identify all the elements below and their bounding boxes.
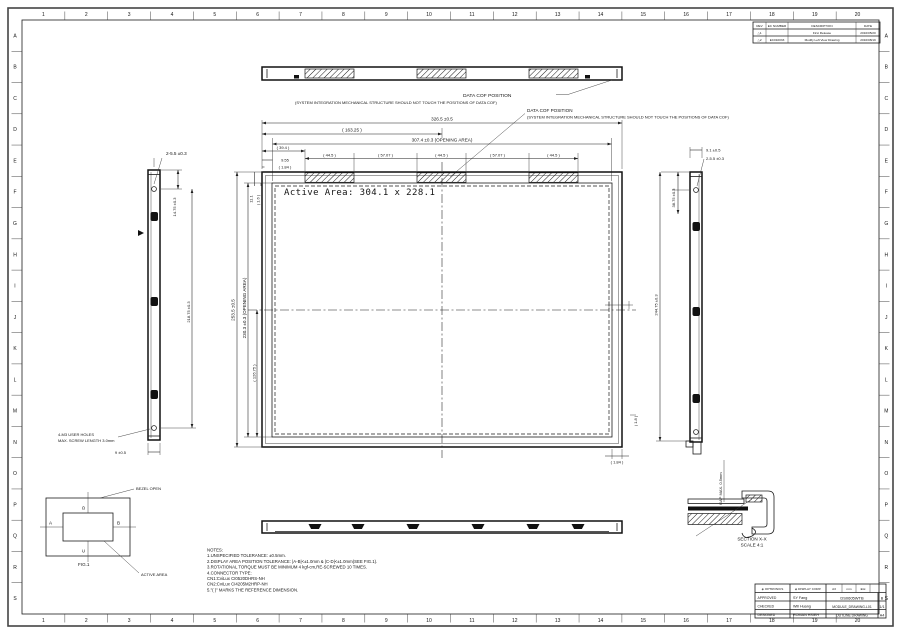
grid-label: 18	[769, 12, 775, 18]
dim-seg-a: ( 44.5 )	[323, 153, 336, 158]
grid-label: Q	[13, 534, 17, 540]
grid-label: G	[13, 221, 17, 227]
grid-label: 17	[726, 618, 732, 624]
grid-label: 19	[812, 618, 818, 624]
data-cof-callout-top-line2: (SYSTEM INTEGRATION MECHANICAL STRUCTURE…	[295, 100, 497, 105]
notes-line-3: 3.ROTATIONAL TORQUE MUST BE MINIMUM 4 kg…	[207, 565, 367, 570]
rev-header-desc: DESCRIPTION	[811, 24, 832, 28]
grid-label: K	[13, 346, 17, 352]
grid-label: H	[13, 252, 17, 258]
dim-opening-width: 307.4 ±0.3 (OPENING AREA)	[412, 138, 473, 143]
grid-label: 6	[256, 618, 259, 624]
notes: NOTES: 1.UNSPECIFIED TOLERANCE: ±0.5mm. …	[207, 548, 377, 593]
checked-label: CHECKED	[758, 605, 775, 609]
active-area-label: Active Area: 304.1 x 228.1	[284, 188, 435, 198]
dim-seg-e: ( 44.5 )	[547, 153, 560, 158]
front-view: Active Area: 304.1 x 228.1 11.1 ( 1.6 ) …	[248, 162, 638, 465]
section-title: SECTION X-X	[737, 537, 766, 542]
designed-name: ROMAN HSIEH	[793, 613, 819, 617]
engineering-drawing-sheet: 1122334455667788991010111112121313141415…	[0, 0, 901, 634]
grid-label: P	[885, 502, 889, 508]
grid-label: R	[884, 565, 888, 571]
grid-label: 5	[213, 12, 216, 18]
grid-label: F	[13, 190, 16, 196]
notes-line-4: 4.CONNECTOR TYPE:	[207, 570, 252, 575]
rev-header-ec: EC NUMBER	[768, 24, 787, 28]
grid-label: 4	[171, 618, 174, 624]
grid-label: 12	[512, 12, 518, 18]
title-block: ◈ OPTRONICS ◈ DISPLAY CORP. A3 mm ⊕⊖ APP…	[755, 584, 886, 618]
grid-label: C	[13, 96, 17, 102]
grid-label: 20	[855, 618, 861, 624]
grid-label: O	[884, 471, 888, 477]
grid-label: A	[13, 33, 17, 39]
left-dimensions: 253.5 ±0.5 230.3 ±0.3 (OPENING AREA) ( 1…	[231, 172, 274, 447]
grid-label: 7	[299, 12, 302, 18]
dim-opening-height: 230.3 ±0.3 (OPENING AREA)	[242, 277, 247, 338]
rev-row2-desc: Modify Left View Drawing	[805, 38, 840, 42]
notes-line-7: 5."( )" MARKS THE REFERENCE DIMENSION.	[207, 587, 298, 592]
company-logo-1: ◈ OPTRONICS	[762, 587, 784, 591]
rev-header-date: DATE	[864, 24, 872, 28]
dim-bottom-ref: ( 1.84 )	[611, 460, 624, 465]
dim-cof-offset: ( 39.4 )	[277, 145, 290, 150]
gap-max-label: GAP MAX. 0.5mm	[718, 472, 723, 505]
company-logo-2: ◈ DISPLAY CORP.	[795, 587, 821, 591]
grid-label: M	[884, 409, 888, 415]
dim-overall-width: 326.5 ±0.5	[431, 117, 453, 122]
dim-right-holes: 2-5.5 ±0.3	[706, 156, 725, 161]
dim-half-height: ( 126.75 )	[252, 364, 257, 382]
grid-label: 8	[342, 12, 345, 18]
dim-left-hole-top: 14.75 ±0.3	[172, 197, 177, 217]
section-scale: SCALE 4:1	[741, 543, 764, 548]
data-cof-callout-front: DATA COF POSITION (SYSTEM INTEGRATION ME…	[450, 108, 729, 177]
grid-label: 15	[641, 12, 647, 18]
grid-label: 9	[385, 618, 388, 624]
fig1-label-a: A	[49, 521, 53, 526]
grid-label: K	[885, 346, 889, 352]
dim-right-ref: ( 1.8 )	[633, 415, 638, 426]
grid-label: 11	[469, 618, 474, 624]
grid-label: 5	[213, 618, 216, 624]
grid-label: 16	[683, 12, 689, 18]
grid-label: 9	[385, 12, 388, 18]
grid-label: 14	[598, 12, 604, 18]
grid-label: B	[885, 65, 889, 71]
designed-label: DESIGNED	[758, 613, 776, 617]
grid-label: 12	[512, 618, 518, 624]
grid-label: 18	[769, 618, 775, 624]
grid-label: B	[13, 65, 17, 71]
grid-label: 20	[855, 12, 861, 18]
projection-symbol-icon: ⊕⊖	[860, 587, 866, 591]
grid-label: D	[13, 127, 17, 133]
grid-label: A	[885, 33, 889, 39]
grid-label: G	[884, 221, 888, 227]
grid-label: I	[14, 284, 15, 290]
notes-line-5: CN1:CviLux CI0520DHRS-NH	[207, 576, 265, 581]
notes-line-1: 1.UNSPECIFIED TOLERANCE: ±0.5mm.	[207, 553, 286, 558]
dim-edge-ref: ( 1.84 )	[279, 164, 292, 169]
dim-left-hole-span: 218.75 ±0.3	[186, 301, 191, 323]
grid-label: 10	[426, 12, 432, 18]
grid-label: 14	[598, 618, 604, 624]
dim-half-width: ( 163.25 )	[342, 128, 362, 133]
grid-label: I	[886, 284, 887, 290]
grid-label: 1	[42, 12, 45, 18]
notes-line-2: 2.DISPLAY AREA POSITION TOLERANCE: |A-B|…	[207, 559, 377, 564]
datum-triangle-marker	[138, 230, 144, 236]
grid-label: C	[884, 96, 888, 102]
grid-label: 2	[85, 12, 88, 18]
dim-left-holes: 2-5.5 ±0.3	[166, 151, 187, 156]
fig1-label-c: C	[81, 549, 86, 553]
grid-label: F	[885, 190, 888, 196]
grid-label: H	[884, 252, 888, 258]
rev-row1-marker: △1	[757, 31, 761, 35]
dim-right-hole-top: 38.75 ±0.3	[671, 188, 676, 208]
grid-label: 19	[812, 12, 818, 18]
data-cof-callout-top-line1: DATA COF POSITION	[463, 93, 512, 99]
bottom-edge-view	[262, 521, 622, 533]
sheet-number: 1/1	[879, 605, 884, 609]
document-number: MODULE_DRAWING-L01	[832, 605, 872, 609]
notes-line-0: NOTES:	[207, 548, 223, 553]
grid-label: J	[885, 315, 888, 321]
top-edge-view: DATA COF POSITION (SYSTEM INTEGRATION ME…	[262, 67, 622, 105]
paper-size: A4	[880, 613, 885, 617]
grid-label: 4	[171, 12, 174, 18]
user-holes-callout-line2: MAX. SCREW LENGTH 3.0mm	[58, 438, 115, 443]
revision-letter: B	[881, 596, 884, 600]
grid-label: 16	[683, 618, 689, 624]
dim-seg-c: ( 44.5 )	[435, 153, 448, 158]
rev-header-rev: REV	[756, 24, 763, 28]
data-cof-callout-front-line1: DATA COF POSITION	[527, 108, 573, 113]
grid-label: 6	[256, 12, 259, 18]
rev-row2-date: 2016/08/19	[860, 38, 876, 42]
revision-table: REV EC NUMBER DESCRIPTION DATE △1 First …	[753, 22, 880, 43]
grid-label: O	[13, 471, 17, 477]
approved-name: SY Fang	[793, 596, 807, 600]
grid-label: R	[13, 565, 17, 571]
dim-seg-d: ( 57.07 )	[490, 153, 506, 158]
grid-label: D	[884, 127, 888, 133]
grid-label: 8	[342, 618, 345, 624]
approved-label: APPROVED	[758, 596, 777, 600]
grid-label: M	[13, 409, 17, 415]
left-side-view: 2-5.5 ±0.3 14.75 ±0.3 218.75 ±0.3 9 ±0.5…	[58, 151, 196, 455]
grid-label: Q	[884, 534, 888, 540]
data-cof-callout-front-line2: (SYSTEM INTEGRATION MECHANICAL STRUCTURE…	[527, 115, 729, 120]
grid-label: 10	[426, 618, 432, 624]
grid-label: E	[885, 158, 889, 164]
grid-label: L	[14, 377, 17, 383]
fig1-label-b: B	[117, 521, 120, 526]
active-area-callout: ACTIVE AREA	[141, 572, 168, 577]
rev-row1-desc: First Release	[813, 31, 832, 35]
drawing-title: OUTLINE DRAWING	[836, 613, 868, 617]
grid-label: P	[13, 502, 17, 508]
checked-name: Will Huang	[793, 605, 811, 609]
grid-label: N	[13, 440, 17, 446]
title-block-size: A3	[832, 587, 836, 591]
dim-left-thickness: 9 ±0.5	[115, 450, 127, 455]
grid-label: L	[885, 377, 888, 383]
grid-label: 11	[469, 12, 474, 18]
rev-row1-date: 2016/05/20	[860, 31, 876, 35]
user-holes-callout-line1: 4-M3 USER HOLES	[58, 432, 94, 437]
grid-label: 17	[726, 12, 732, 18]
dim-right-hole-span: 244.75 ±0.3	[654, 294, 659, 316]
grid-label: 3	[128, 618, 131, 624]
grid-label: N	[884, 440, 888, 446]
grid-label: 13	[555, 12, 561, 18]
grid-label: E	[13, 158, 17, 164]
dim-top-ref: ( 1.6 )	[256, 194, 261, 205]
drawing-canvas: 1122334455667788991010111112121313141415…	[0, 0, 901, 634]
grid-label: 15	[641, 618, 647, 624]
grid-label: S	[13, 596, 17, 602]
rev-row2-ec: EC010033	[770, 38, 785, 42]
dim-right-thickness: 9.1 ±0.5	[706, 148, 721, 153]
fig1-caption: FIG.1	[78, 562, 90, 567]
fig1-diagram: A B D C BEZEL OPEN ACTIVE AREA FIG.1	[40, 486, 168, 577]
grid-label: 7	[299, 618, 302, 624]
right-side-view: 9.1 ±0.5 2-5.5 ±0.3 38.75 ±0.3 244.75 ±0…	[654, 147, 725, 454]
model-number: DS0605WTB	[840, 595, 864, 600]
rev-row2-marker: △2	[757, 38, 761, 42]
grid-label: 1	[42, 618, 45, 624]
grid-label: J	[14, 315, 17, 321]
notes-line-6: CN2:CviLux CI4205M2HRP-NH	[207, 582, 268, 587]
dim-seg-b: ( 57.07 )	[378, 153, 394, 158]
dim-top-gap: 11.1	[249, 194, 254, 202]
grid-label: 13	[555, 618, 561, 624]
title-block-unit: mm	[846, 587, 852, 591]
grid-label: 3	[128, 12, 131, 18]
fig1-label-d: D	[81, 506, 86, 510]
section-detail: GAP MAX. 0.5mm SECTION X-X SCALE 4:1	[686, 441, 774, 548]
grid-label: 2	[85, 618, 88, 624]
dim-edge-offset: 9.55	[281, 157, 290, 162]
bezel-open-callout: BEZEL OPEN	[136, 486, 161, 491]
dim-overall-height: 253.5 ±0.5	[231, 299, 236, 321]
